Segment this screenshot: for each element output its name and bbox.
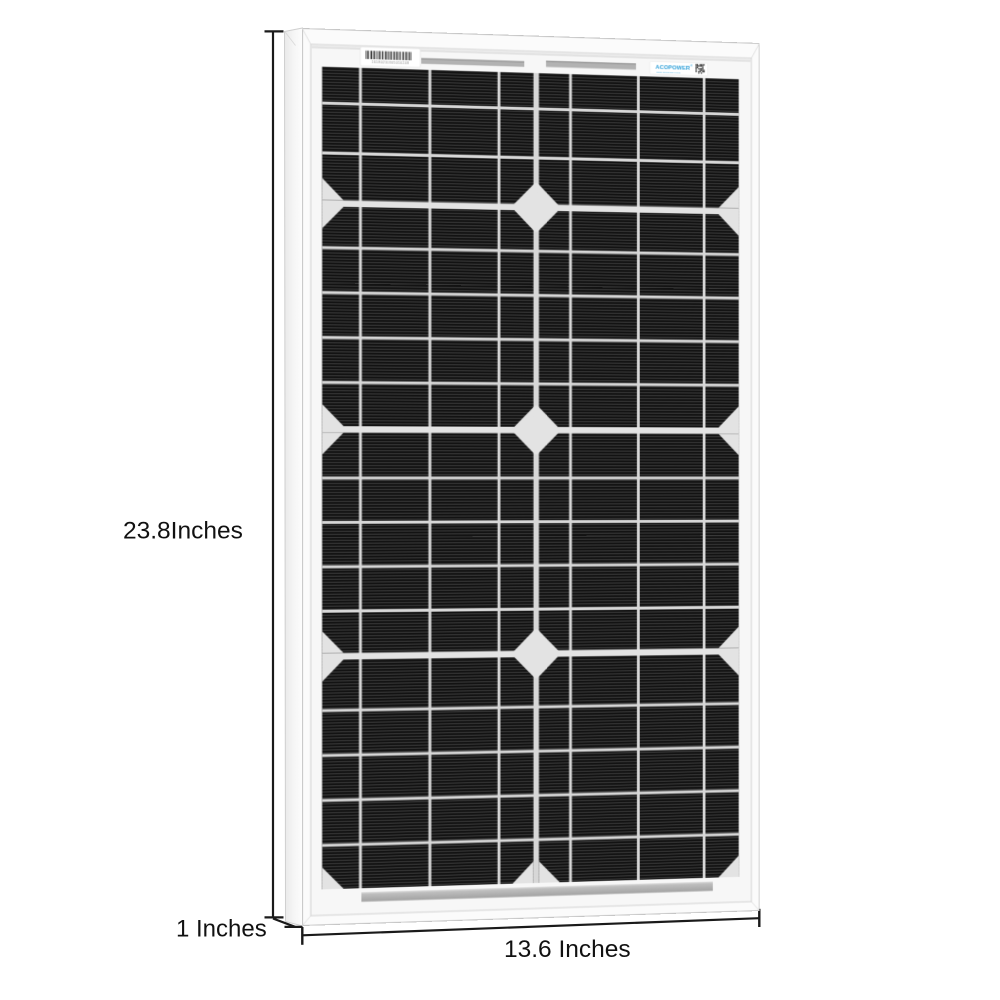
svg-text:23.8Inches: 23.8Inches xyxy=(123,518,243,545)
svg-text:1 Inches: 1 Inches xyxy=(176,916,267,943)
svg-text:13.6 Inches: 13.6 Inches xyxy=(504,936,631,963)
